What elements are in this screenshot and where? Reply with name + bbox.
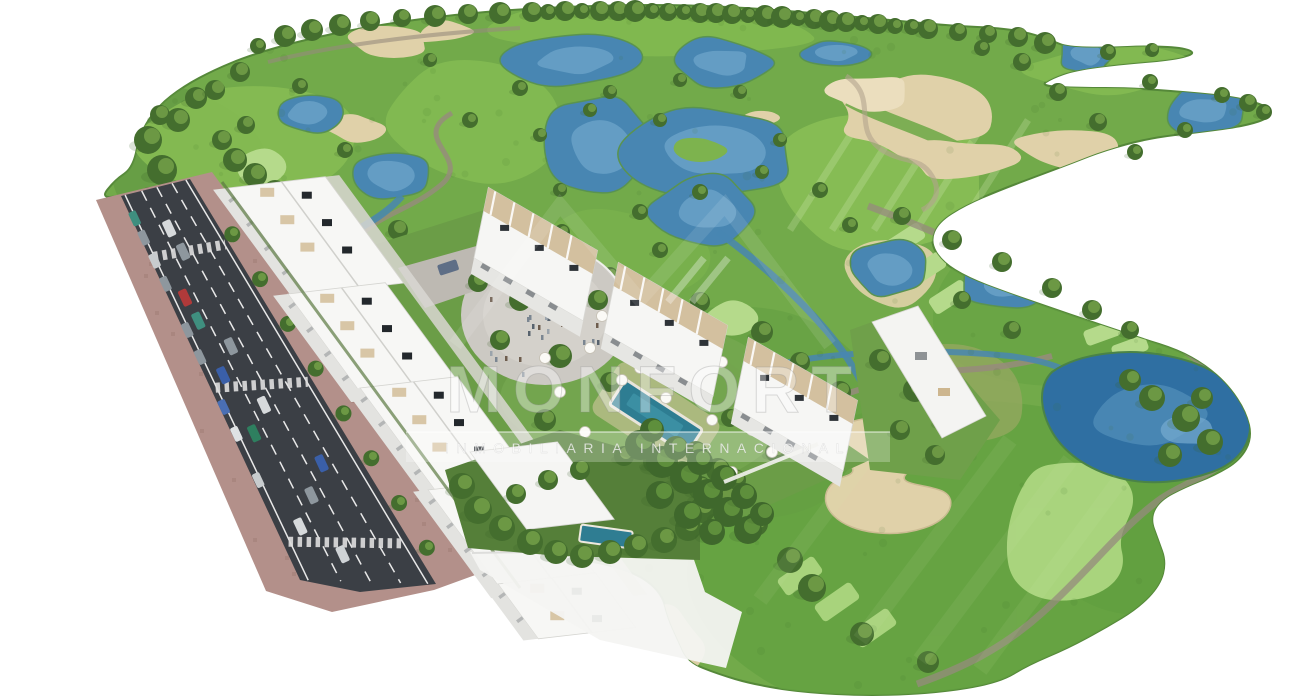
svg-text:INMOBILIARIA INTERNACIONAL: INMOBILIARIA INTERNACIONAL (445, 440, 851, 456)
svg-text:MONFORT: MONFORT (446, 352, 864, 426)
